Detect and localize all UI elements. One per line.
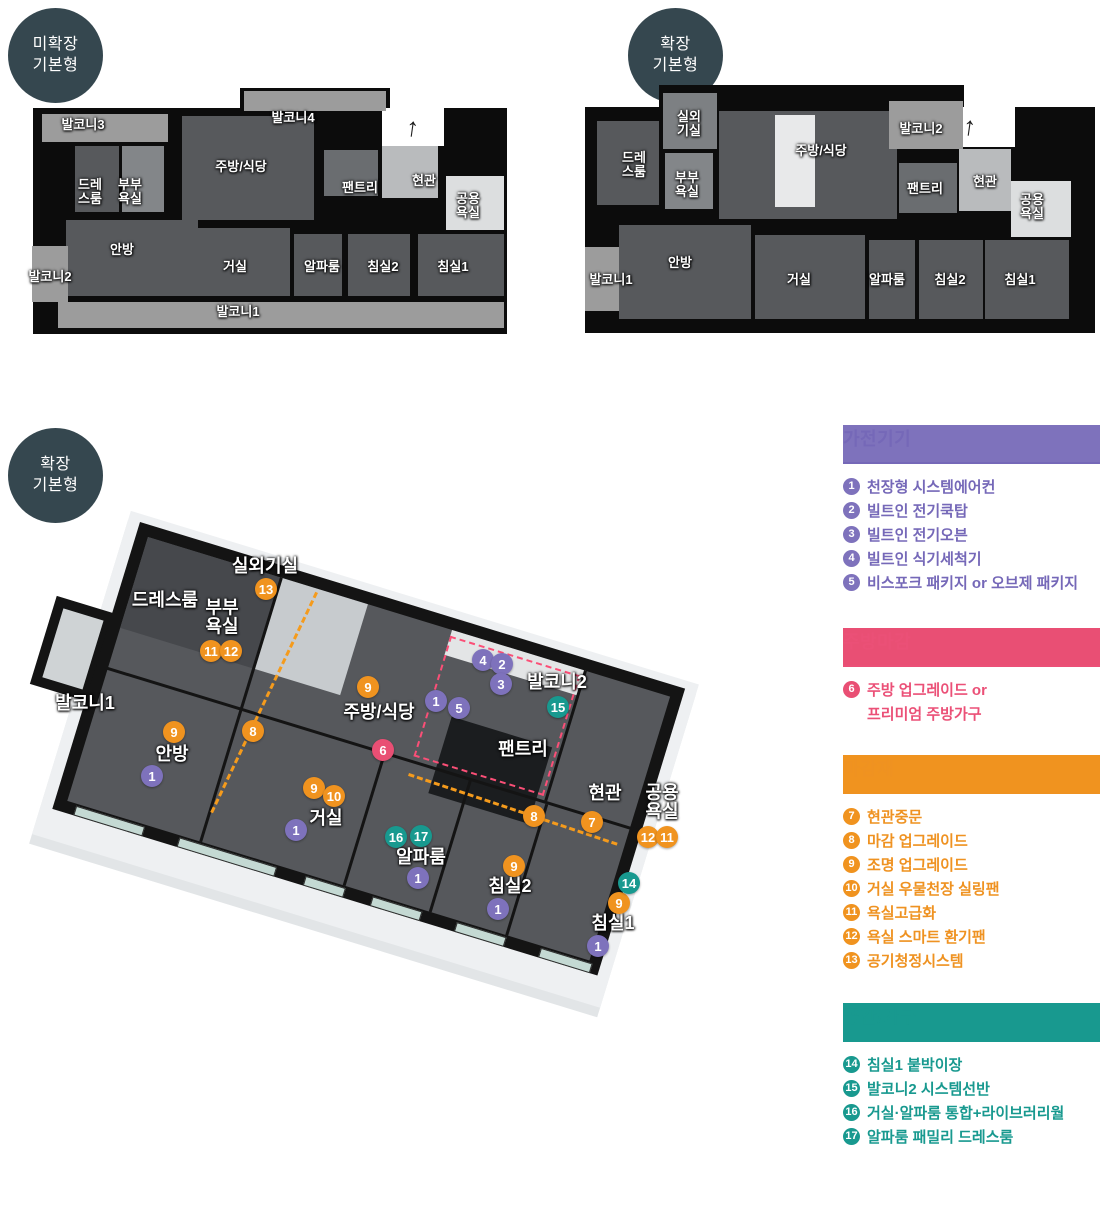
marker-finish: 11 [200,640,222,662]
room-label: 발코니4 [271,111,314,125]
badge-line1: 확장 [40,455,70,476]
room-label: 안방 [155,745,188,765]
room-label: 발코니1 [589,273,632,287]
room-label: 침실1 [1004,273,1035,287]
legend-section-appliance: 가전기기 1 천장형 시스템에어컨 2 빌트인 전기쿡탑 3 빌트인 전기오븐 … [843,425,1100,594]
badge-line2: 기본형 [653,56,699,77]
legend-item-text: 빌트인 식기세척기 [867,548,982,569]
room-label: 부부욕실 [115,178,144,206]
legend-item: 15 발코니2 시스템선반 [843,1076,1100,1100]
marker-appliance: 1 [487,898,509,920]
floorplan-infographic: { "badges": { "plan_a": {"line1": "미확장",… [0,0,1100,1214]
room-label: 거실 [787,273,811,287]
legend-item: 4 빌트인 식기세척기 [843,546,1100,570]
room-label: 침실2 [934,273,965,287]
legend-item-number: 1 [843,478,860,495]
room-label: 팬트리 [907,182,943,196]
marker-finish: 9 [163,721,185,743]
room-label: 공용욕실 [642,784,683,823]
legend-item-number: 16 [843,1104,860,1121]
legend-item: 6 주방 업그레이드 or [843,677,1100,701]
marker-finish: 9 [608,892,630,914]
room-label: 주방/식당 [795,144,846,158]
room-balcony1 [58,302,504,328]
room-label: 발코니1 [216,305,259,319]
legend-item-number: 5 [843,574,860,591]
legend-item-text: 욕실 스마트 환기팬 [867,926,986,947]
room-label: 실외기실 [674,110,703,138]
legend-item-number: 9 [843,856,860,873]
legend-item: 9 조명 업그레이드 [843,852,1100,876]
legend-panel: 가전기기 1 천장형 시스템에어컨 2 빌트인 전기쿡탑 3 빌트인 전기오븐 … [843,420,1100,1160]
room-label: 안방 [110,243,134,257]
room-label: 주방/식당 [215,160,266,174]
room-label: 팬트리 [342,181,378,195]
marker-appliance: 2 [491,653,513,675]
legend-item-number: 17 [843,1128,860,1145]
legend-section-title: 마감재 [843,755,1100,794]
legend-item-text: 천장형 시스템에어컨 [867,476,995,497]
legend-section-title: 가전기기 [843,425,1100,464]
legend-item-number: 4 [843,550,860,567]
room-label: 침실1 [437,260,468,274]
legend-item-text: 빌트인 전기오븐 [867,524,968,545]
room-label: 드레스룸 [75,178,104,206]
marker-finish: 10 [323,785,345,807]
legend-item-number: 10 [843,880,860,897]
badge-line1: 확장 [660,35,690,56]
marker-finish: 9 [503,855,525,877]
marker-finish: 12 [220,640,242,662]
legend-item-number: 2 [843,502,860,519]
legend-item-text: 비스포크 패키지 or 오브제 패키지 [867,572,1078,593]
legend-item-text: 발코니2 시스템선반 [867,1078,990,1099]
marker-appliance: 1 [587,935,609,957]
legend-item: 8 마감 업그레이드 [843,828,1100,852]
room-label: 거실 [309,809,342,829]
kitchen-island [775,115,815,207]
legend-item: 2 빌트인 전기쿡탑 [843,498,1100,522]
legend-item: 7 현관중문 [843,804,1100,828]
legend-item: 3 빌트인 전기오븐 [843,522,1100,546]
marker-space: 15 [547,696,569,718]
legend-item: 11 욕실고급화 [843,900,1100,924]
marker-appliance: 5 [448,697,470,719]
legend-item-number: 8 [843,832,860,849]
legend-item-number: 12 [843,928,860,945]
legend-item: 1 천장형 시스템에어컨 [843,474,1100,498]
room-label: 부부욕실 [672,171,701,199]
room-label: 거실 [223,260,247,274]
room-label: 실외기실 [232,557,298,577]
marker-finish: 9 [303,777,325,799]
legend-item-text: 침실1 붙박이장 [867,1054,962,1075]
room-label: 알파룸 [869,273,905,287]
legend-item-text: 마감 업그레이드 [867,830,968,851]
legend-item: 13 공기청정시스템 [843,948,1100,972]
legend-section-title: 공간/가구 [843,1003,1100,1042]
legend-section-finish: 마감재 7 현관중문 8 마감 업그레이드 9 조명 업그레이드 10 거실 우… [843,755,1100,972]
badge-line2: 기본형 [33,476,79,497]
room-master [619,225,751,319]
room-label: 공용욕실 [1017,193,1046,221]
legend-item-text: 알파룸 패밀리 드레스룸 [867,1126,1013,1147]
room-label: 팬트리 [498,740,548,760]
legend-item-number: 14 [843,1056,860,1073]
floorplan-expanded: 실외기실 드레스룸 부부욕실 주방/식당 발코니2 팬트리 현관 공용욕실 안방… [583,85,1097,333]
marker-kitchen-finish: 6 [372,739,394,761]
legend-item-text: 주방 업그레이드 or [867,679,987,700]
marker-finish: 11 [656,826,678,848]
marker-appliance: 1 [407,867,429,889]
room-label: 현관 [412,174,436,188]
legend-item-number: 15 [843,1080,860,1097]
marker-space: 17 [410,825,432,847]
marker-finish: 13 [255,578,277,600]
legend-item-text: 조명 업그레이드 [867,854,968,875]
legend-item-text: 빌트인 전기쿡탑 [867,500,968,521]
room-label: 현관 [588,784,621,804]
room-label: 알파룸 [304,260,340,274]
room-label: 드레스룸 [619,151,648,179]
room-label: 발코니3 [61,118,104,132]
marker-appliance: 3 [490,673,512,695]
room-label: 공용욕실 [453,192,482,220]
legend-item-text: 거실·알파룸 통합+라이브러리월 [867,1102,1064,1123]
legend-section-space-furniture: 공간/가구 14 침실1 붙박이장 15 발코니2 시스템선반 16 거실·알파… [843,1003,1100,1148]
legend-item-text: 현관중문 [867,806,922,827]
marker-finish: 8 [242,720,264,742]
marker-space: 14 [618,872,640,894]
legend-item: 프리미엄 주방가구 [843,701,1100,725]
legend-item-text: 프리미엄 주방가구 [867,703,982,724]
legend-item-number: 13 [843,952,860,969]
legend-item-number: 6 [843,681,860,698]
badge-line2: 기본형 [33,56,79,77]
legend-item-number: 3 [843,526,860,543]
room-label: 드레스룸 [132,591,198,611]
room-label: 현관 [973,175,997,189]
room-label: 주방/식당 [343,703,414,723]
room-label: 안방 [668,256,692,270]
legend-item: 17 알파룸 패밀리 드레스룸 [843,1124,1100,1148]
room-label: 부부욕실 [202,599,243,638]
legend-item-text: 거실 우물천장 실링팬 [867,878,1000,899]
legend-section-kitchen-finish: 주방마감 6 주방 업그레이드 or 프리미엄 주방가구 [843,628,1100,725]
marker-appliance: 1 [141,765,163,787]
legend-item: 10 거실 우물천장 실링팬 [843,876,1100,900]
room-label: 침실2 [367,260,398,274]
room-label: 발코니2 [527,673,587,693]
legend-item-text: 공기청정시스템 [867,950,964,971]
legend-item: 5 비스포크 패키지 or 오브제 패키지 [843,570,1100,594]
legend-item-number: 11 [843,904,860,921]
legend-item-number: 7 [843,808,860,825]
legend-item: 16 거실·알파룸 통합+라이브러리월 [843,1100,1100,1124]
marker-finish: 7 [581,811,603,833]
room-label: 침실2 [488,877,531,897]
marker-finish: 8 [523,805,545,827]
marker-finish: 9 [357,676,379,698]
room-label: 발코니2 [899,122,942,136]
badge-line1: 미확장 [33,35,79,56]
room-label: 발코니1 [55,694,115,714]
marker-space: 16 [385,826,407,848]
room-label: 알파룸 [396,848,446,868]
floorplan-isometric: 실외기실 드레스룸 부부욕실 발코니1 안방 주방/식당 발코니2 팬트리 현관… [30,505,840,1025]
marker-appliance: 1 [425,690,447,712]
legend-item: 14 침실1 붙박이장 [843,1052,1100,1076]
floorplan-unexpanded: 발코니3 발코니4 드레스룸 부부욕실 주방/식당 팬트리 현관 공용욕실 안방… [30,88,512,334]
room-label: 발코니2 [28,270,71,284]
marker-appliance: 1 [285,819,307,841]
room-label: 침실1 [591,914,634,934]
room-balcony4 [244,91,386,111]
legend-item: 12 욕실 스마트 환기팬 [843,924,1100,948]
legend-section-title: 주방마감 [843,628,1100,667]
legend-item-text: 욕실고급화 [867,902,936,923]
